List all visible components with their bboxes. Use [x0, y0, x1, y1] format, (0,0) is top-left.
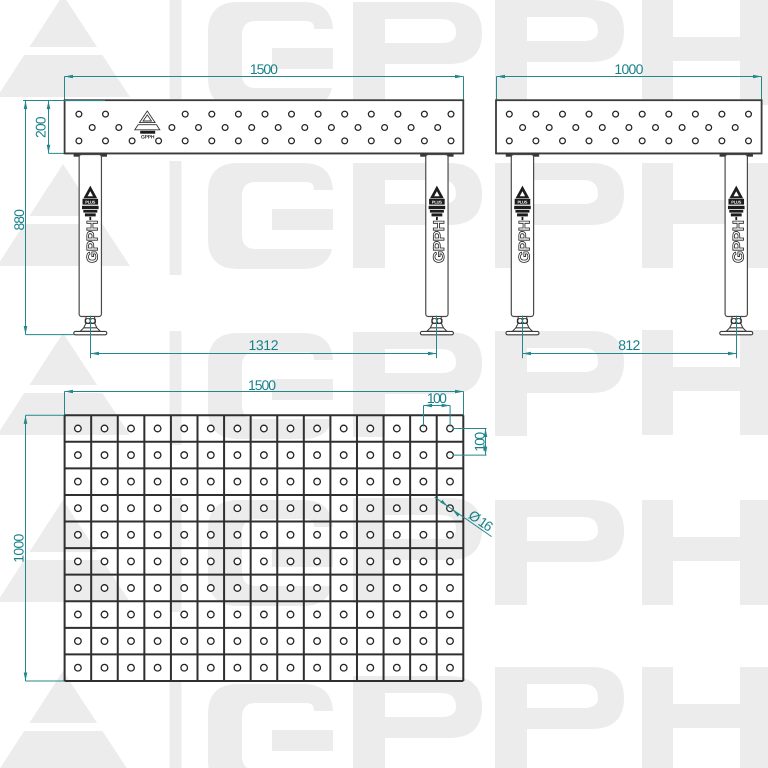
svg-text:PLUS: PLUS: [731, 200, 741, 205]
svg-text:PLUS: PLUS: [85, 200, 95, 205]
svg-text:GPPH: GPPH: [730, 220, 747, 263]
svg-text:GPPH: GPPH: [431, 220, 448, 263]
svg-text:200: 200: [33, 116, 49, 138]
svg-text:GPPH: GPPH: [85, 220, 102, 263]
svg-text:880: 880: [11, 209, 27, 231]
svg-text:1500: 1500: [248, 377, 276, 393]
svg-text:1000: 1000: [614, 61, 643, 77]
svg-text:1312: 1312: [249, 337, 279, 353]
svg-text:812: 812: [618, 337, 640, 353]
svg-text:PLUS: PLUS: [432, 200, 442, 205]
svg-text:1000: 1000: [10, 533, 26, 562]
svg-text:GPPH: GPPH: [141, 134, 155, 140]
svg-text:PLUS: PLUS: [517, 200, 527, 205]
svg-text:100: 100: [471, 432, 487, 452]
svg-text:GPPH: GPPH: [517, 220, 534, 263]
svg-text:100: 100: [427, 390, 447, 406]
svg-text:1500: 1500: [250, 61, 278, 77]
